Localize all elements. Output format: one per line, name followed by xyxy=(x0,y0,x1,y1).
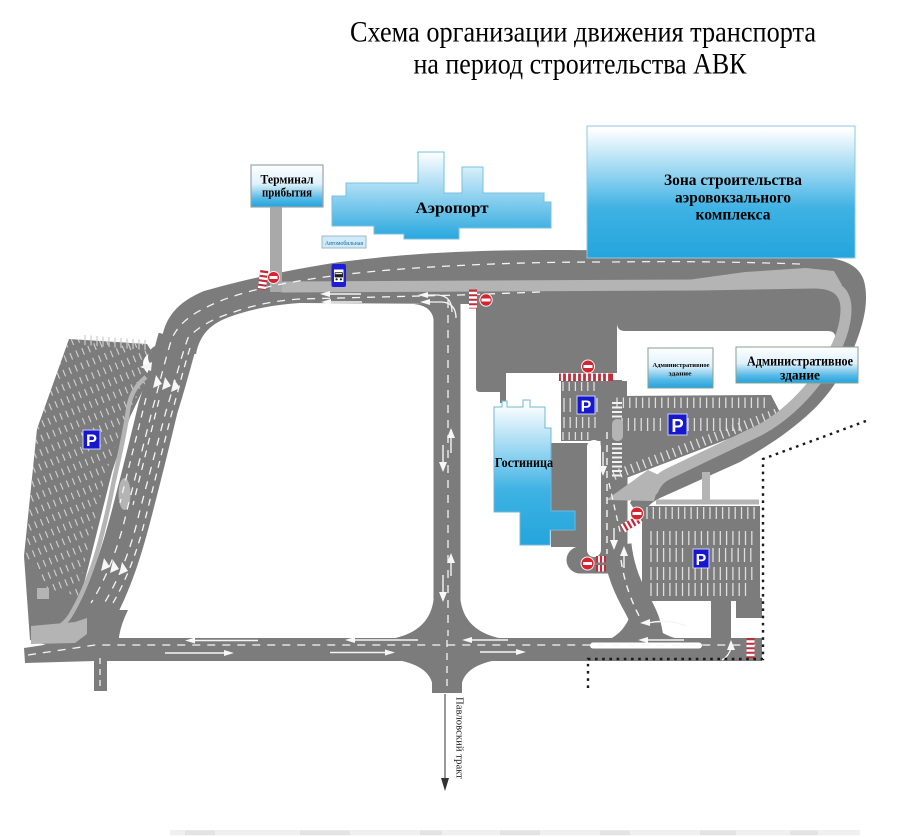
svg-text:Автомобильная: Автомобильная xyxy=(325,240,363,247)
svg-text:P: P xyxy=(86,432,97,450)
svg-text:P: P xyxy=(696,552,707,569)
svg-text:Аэропорт: Аэропорт xyxy=(416,200,489,217)
svg-text:аэровокзального: аэровокзального xyxy=(675,190,791,207)
svg-text:на период строительства АВК: на период строительства АВК xyxy=(414,48,748,81)
svg-text:Гостиница: Гостиница xyxy=(495,455,553,470)
svg-text:здание: здание xyxy=(669,371,692,378)
svg-text:Административное: Административное xyxy=(653,362,710,369)
svg-text:Административное: Административное xyxy=(747,354,853,369)
svg-text:Терминал: Терминал xyxy=(261,173,314,187)
svg-text:комплекса: комплекса xyxy=(696,207,771,224)
svg-text:здание: здание xyxy=(780,369,820,384)
svg-text:P: P xyxy=(581,399,592,416)
svg-text:P: P xyxy=(671,415,683,436)
svg-text:Павловский тракт: Павловский тракт xyxy=(454,697,465,779)
svg-text:прибытия: прибытия xyxy=(262,186,312,200)
svg-text:Схема организации движения тра: Схема организации движения транспорта xyxy=(350,16,816,49)
svg-text:Зона строительства: Зона строительства xyxy=(664,172,802,189)
